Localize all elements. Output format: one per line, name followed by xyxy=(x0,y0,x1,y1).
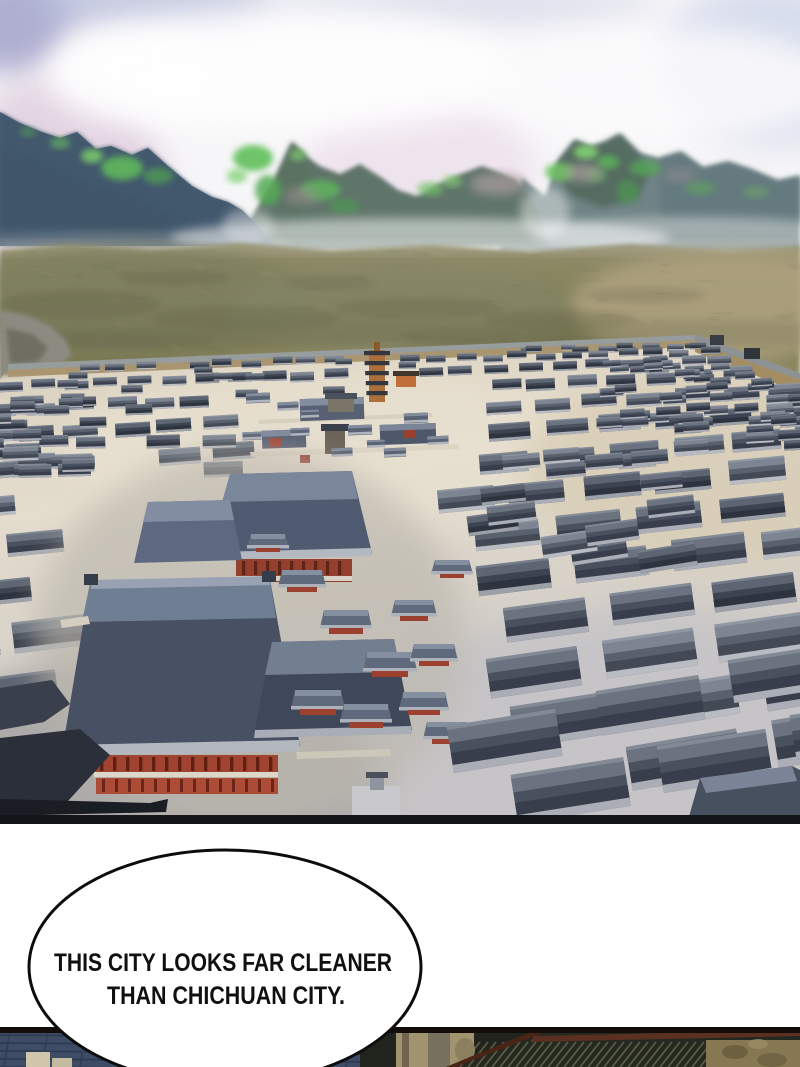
svg-text:THAN CHICHUAN CITY.: THAN CHICHUAN CITY. xyxy=(107,982,345,1010)
svg-text:THIS CITY LOOKS FAR CLEANER: THIS CITY LOOKS FAR CLEANER xyxy=(54,949,392,977)
